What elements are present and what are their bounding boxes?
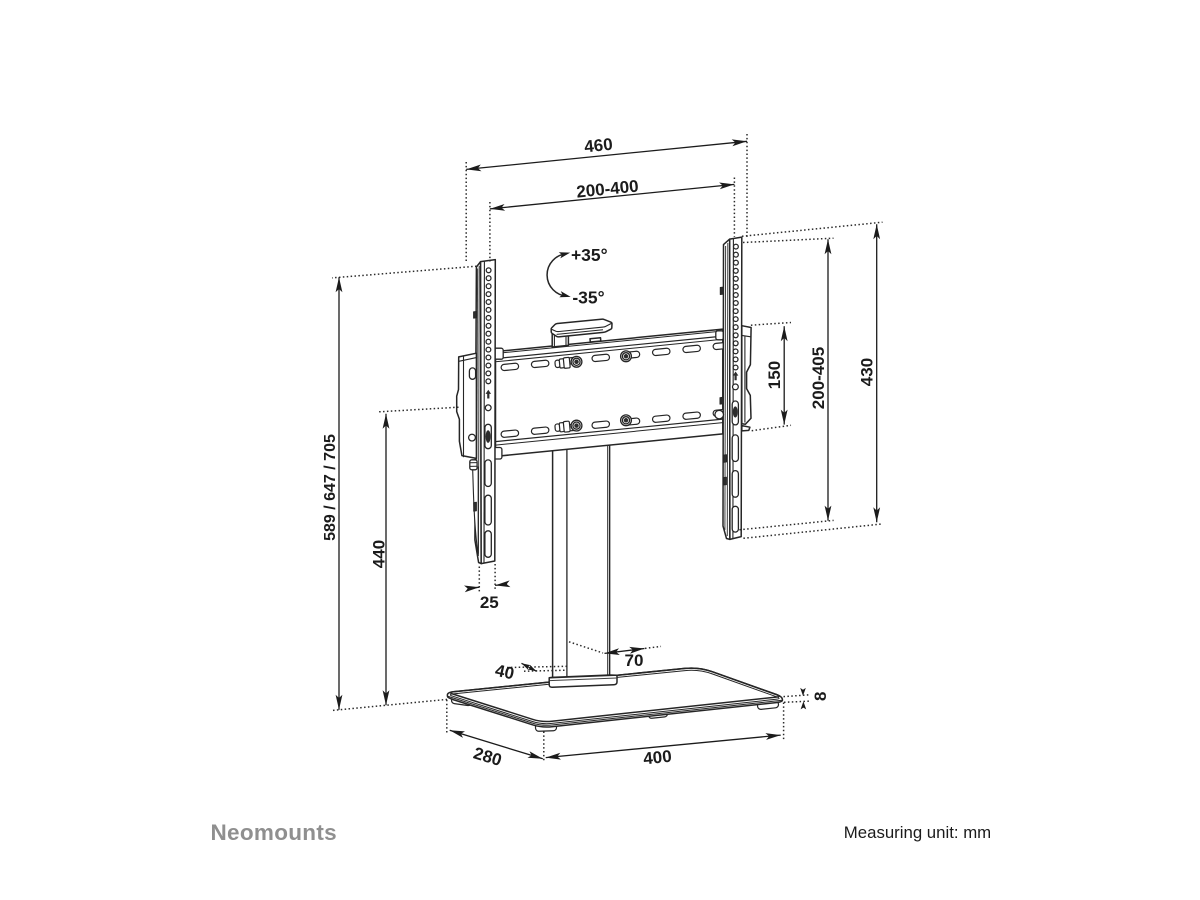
svg-text:430: 430	[857, 358, 876, 386]
svg-text:-35°: -35°	[572, 288, 604, 308]
svg-text:Measuring unit: mm: Measuring unit: mm	[844, 823, 991, 842]
svg-text:+35°: +35°	[571, 245, 608, 265]
svg-text:200-405: 200-405	[809, 347, 828, 409]
svg-text:460: 460	[583, 135, 613, 157]
svg-text:589 / 647 / 705: 589 / 647 / 705	[322, 434, 339, 541]
svg-text:70: 70	[625, 651, 644, 670]
svg-text:25: 25	[480, 593, 499, 612]
svg-text:8: 8	[811, 692, 830, 701]
svg-text:150: 150	[765, 361, 784, 389]
svg-text:400: 400	[642, 747, 672, 769]
svg-text:440: 440	[370, 540, 389, 568]
svg-text:Neomounts: Neomounts	[211, 820, 337, 845]
svg-text:40: 40	[493, 661, 515, 684]
